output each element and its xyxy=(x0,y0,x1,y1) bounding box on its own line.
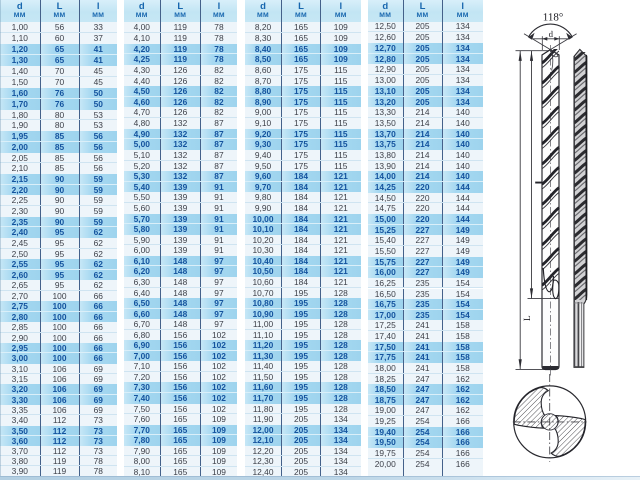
svg-text:118°: 118° xyxy=(543,12,564,24)
svg-text:L: L xyxy=(523,315,533,321)
svg-text:d: d xyxy=(549,29,554,39)
